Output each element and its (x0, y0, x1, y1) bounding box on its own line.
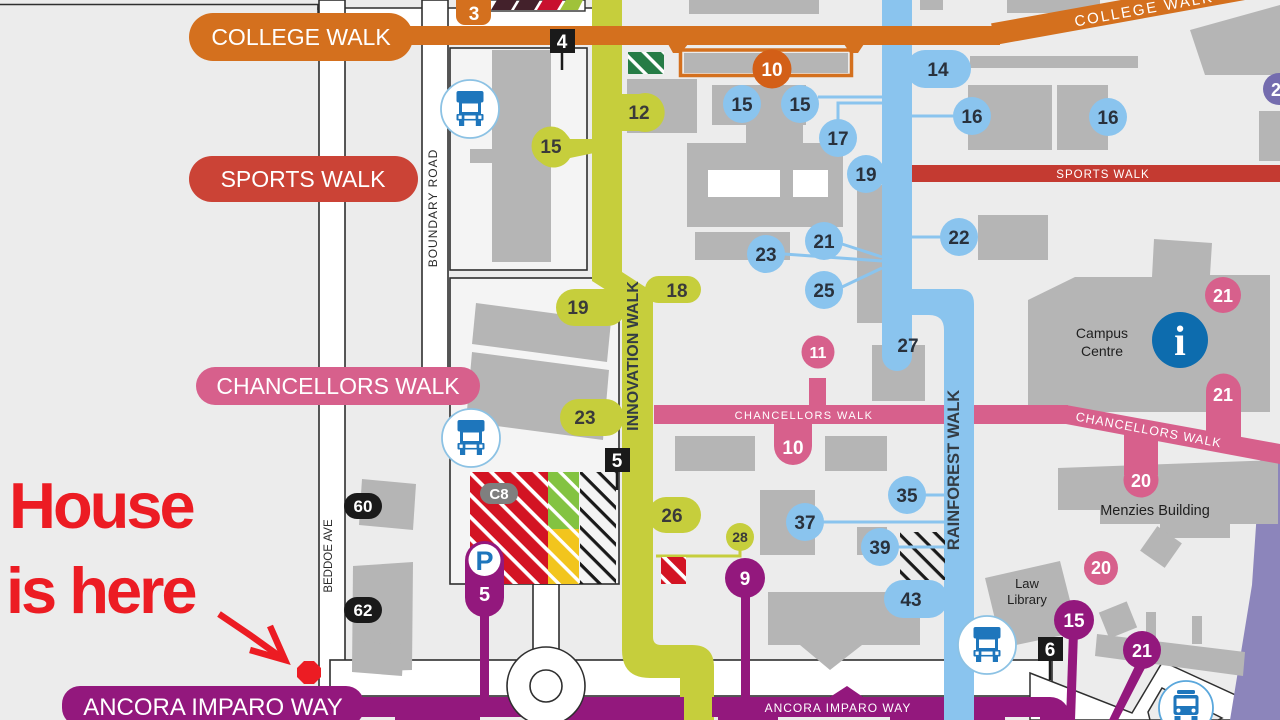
svg-text:21: 21 (1213, 385, 1233, 405)
svg-text:INNOVATION WALK: INNOVATION WALK (625, 281, 642, 431)
svg-text:15: 15 (789, 95, 811, 116)
svg-text:26: 26 (661, 506, 682, 527)
svg-text:is here: is here (6, 554, 195, 627)
svg-text:27: 27 (897, 336, 918, 357)
svg-text:20: 20 (1131, 471, 1151, 491)
svg-text:3: 3 (469, 4, 480, 25)
svg-text:21: 21 (1132, 641, 1152, 661)
svg-text:15: 15 (731, 95, 753, 116)
svg-text:2: 2 (1271, 80, 1280, 100)
svg-text:10: 10 (761, 60, 782, 81)
svg-text:i: i (1174, 319, 1186, 365)
svg-text:COLLEGE WALK: COLLEGE WALK (211, 24, 391, 50)
svg-text:Law: Law (1015, 576, 1039, 591)
svg-text:23: 23 (755, 245, 776, 266)
svg-text:C8: C8 (489, 486, 508, 503)
svg-text:21: 21 (813, 232, 835, 253)
svg-text:39: 39 (869, 538, 890, 559)
svg-text:Campus: Campus (1076, 325, 1128, 341)
svg-text:43: 43 (900, 590, 921, 611)
svg-text:60: 60 (354, 497, 373, 516)
svg-text:12: 12 (628, 103, 649, 124)
svg-text:BEDDOE AVE: BEDDOE AVE (323, 519, 335, 593)
svg-text:ANCORA IMPARO WAY: ANCORA IMPARO WAY (765, 701, 912, 715)
svg-text:10: 10 (782, 438, 803, 459)
svg-text:11: 11 (810, 345, 827, 362)
svg-text:28: 28 (732, 529, 748, 545)
svg-text:5: 5 (479, 584, 490, 606)
svg-text:RAINFOREST WALK: RAINFOREST WALK (945, 390, 963, 550)
svg-text:23: 23 (574, 408, 595, 429)
svg-text:BOUNDARY ROAD: BOUNDARY ROAD (426, 149, 440, 268)
svg-text:Menzies Building: Menzies Building (1100, 503, 1210, 519)
svg-text:ANCORA IMPARO WAY: ANCORA IMPARO WAY (83, 694, 343, 720)
svg-text:14: 14 (927, 60, 949, 81)
svg-text:9: 9 (740, 569, 751, 590)
svg-text:SPORTS WALK: SPORTS WALK (221, 166, 387, 192)
svg-text:21: 21 (1213, 286, 1233, 306)
svg-text:25: 25 (813, 281, 835, 302)
svg-text:5: 5 (612, 451, 623, 472)
svg-text:20: 20 (1091, 558, 1111, 578)
svg-text:6: 6 (1045, 640, 1056, 661)
svg-text:16: 16 (961, 107, 982, 128)
svg-text:Centre: Centre (1081, 343, 1123, 359)
svg-text:4: 4 (557, 32, 568, 53)
svg-text:SPORTS WALK: SPORTS WALK (1056, 169, 1149, 181)
svg-text:37: 37 (794, 513, 815, 534)
svg-text:15: 15 (540, 137, 562, 158)
svg-text:17: 17 (827, 129, 848, 150)
svg-text:16: 16 (1097, 108, 1118, 129)
svg-text:15: 15 (1063, 611, 1085, 632)
svg-text:19: 19 (855, 165, 876, 186)
svg-text:19: 19 (567, 298, 588, 319)
svg-text:18: 18 (666, 281, 687, 302)
svg-text:35: 35 (896, 486, 918, 507)
svg-text:Library: Library (1007, 592, 1047, 607)
svg-text:P: P (475, 546, 493, 576)
svg-text:62: 62 (354, 601, 373, 620)
svg-text:CHANCELLORS WALK: CHANCELLORS WALK (216, 373, 460, 399)
svg-text:House: House (9, 469, 194, 542)
svg-text:22: 22 (948, 228, 969, 249)
